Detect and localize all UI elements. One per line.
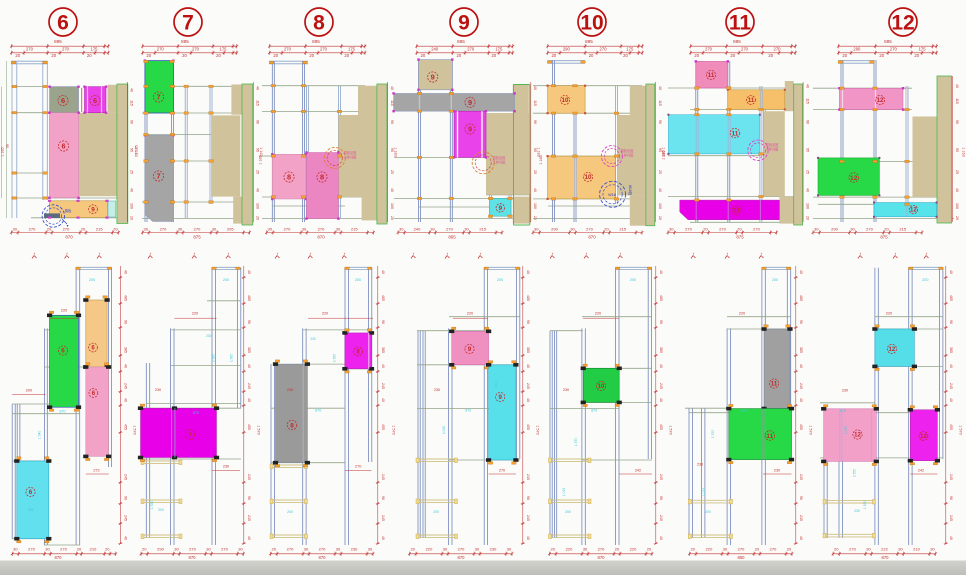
svg-text:220: 220 (595, 312, 601, 316)
svg-text:870: 870 (598, 555, 606, 560)
svg-text:455: 455 (247, 424, 251, 430)
svg-text:20: 20 (730, 53, 735, 58)
svg-text:7: 7 (156, 172, 160, 181)
svg-text:11: 11 (729, 11, 752, 34)
svg-text:90: 90 (381, 496, 385, 500)
svg-text:8: 8 (287, 173, 291, 182)
svg-text:20: 20 (914, 53, 919, 58)
svg-text:40: 40 (659, 398, 663, 402)
svg-text:270: 270 (774, 47, 782, 52)
svg-text:30: 30 (570, 227, 575, 232)
svg-text:245: 245 (659, 515, 663, 521)
svg-text:270: 270 (284, 227, 291, 232)
svg-text:40: 40 (949, 536, 953, 540)
svg-text:115: 115 (533, 100, 537, 106)
svg-text:455: 455 (381, 424, 385, 430)
svg-text:40: 40 (256, 188, 260, 192)
svg-text:1 183: 1 183 (394, 147, 398, 157)
svg-text:9: 9 (468, 346, 472, 353)
svg-text:40: 40 (949, 270, 953, 274)
svg-text:90: 90 (390, 120, 394, 124)
svg-text:1 565: 1 565 (333, 354, 337, 362)
svg-text:485: 485 (526, 295, 530, 301)
svg-text:∨: ∨ (66, 252, 68, 256)
svg-text:270: 270 (849, 546, 856, 551)
svg-text:95: 95 (390, 148, 394, 152)
svg-text:∨: ∨ (309, 252, 311, 256)
svg-text:175: 175 (91, 47, 99, 52)
svg-text:485: 485 (799, 295, 803, 301)
svg-text:242: 242 (635, 469, 641, 473)
svg-text:6: 6 (29, 489, 33, 496)
svg-text:1 040: 1 040 (442, 426, 446, 434)
svg-text:230: 230 (563, 388, 569, 392)
svg-text:1 570: 1 570 (809, 425, 813, 435)
svg-text:90: 90 (124, 320, 128, 324)
svg-text:30: 30 (507, 546, 512, 551)
svg-text:870: 870 (840, 409, 846, 413)
svg-text:1 570: 1 570 (392, 425, 396, 435)
svg-text:20: 20 (216, 53, 221, 58)
svg-text:90: 90 (526, 320, 530, 324)
svg-text:30: 30 (206, 546, 211, 551)
svg-text:290: 290 (563, 47, 571, 52)
svg-text:12: 12 (891, 11, 914, 34)
svg-text:90: 90 (955, 120, 959, 124)
svg-text:30: 30 (399, 227, 404, 232)
svg-text:220: 220 (322, 312, 328, 316)
svg-text:220: 220 (566, 546, 573, 551)
svg-text:30: 30 (304, 546, 309, 551)
svg-text:870: 870 (591, 409, 597, 413)
svg-text:40: 40 (247, 270, 251, 274)
svg-text:40: 40 (659, 270, 663, 274)
svg-text:245: 245 (949, 515, 953, 521)
svg-text:8: 8 (290, 422, 294, 429)
svg-text:870: 870 (193, 411, 199, 415)
svg-text:230: 230 (842, 389, 848, 393)
svg-text:大样详图: 大样详图 (493, 160, 506, 165)
svg-text:870: 870 (317, 234, 325, 239)
svg-text:11: 11 (766, 433, 773, 440)
svg-text:885: 885 (312, 39, 320, 44)
svg-text:865: 865 (448, 234, 456, 239)
svg-text:230: 230 (697, 463, 703, 467)
svg-text:245: 245 (124, 474, 128, 480)
svg-text:270: 270 (192, 47, 200, 52)
svg-text:6: 6 (61, 96, 65, 105)
svg-text:30: 30 (174, 546, 179, 551)
svg-text:870: 870 (189, 555, 197, 560)
svg-text:40: 40 (799, 398, 803, 402)
svg-text:245: 245 (247, 474, 251, 480)
svg-text:1 530: 1 530 (863, 501, 867, 510)
svg-text:270: 270 (29, 227, 36, 232)
svg-text:40: 40 (526, 398, 530, 402)
svg-text:245: 245 (526, 383, 530, 389)
svg-text:215: 215 (96, 227, 103, 232)
svg-text:20: 20 (146, 53, 151, 58)
svg-text:20: 20 (113, 227, 118, 232)
svg-text:40: 40 (247, 536, 251, 540)
svg-text:30: 30 (45, 546, 50, 551)
svg-text:∨: ∨ (33, 252, 35, 256)
svg-text:20: 20 (130, 216, 134, 220)
svg-text:大样详图: 大样详图 (766, 147, 779, 152)
svg-text:30: 30 (238, 546, 243, 551)
svg-text:200: 200 (26, 389, 32, 393)
svg-text:30: 30 (430, 227, 435, 232)
svg-text:90: 90 (799, 320, 803, 324)
svg-text:245: 245 (124, 515, 128, 521)
svg-text:20: 20 (691, 546, 696, 551)
svg-text:40: 40 (390, 188, 394, 192)
svg-text:20: 20 (787, 546, 792, 551)
svg-text:∨: ∨ (343, 252, 345, 256)
svg-text:30: 30 (723, 546, 728, 551)
svg-text:20: 20 (623, 53, 628, 58)
svg-text:30: 30 (336, 546, 341, 551)
svg-text:30: 30 (212, 227, 217, 232)
svg-text:270: 270 (770, 546, 777, 551)
svg-text:270: 270 (318, 227, 325, 232)
svg-text:200: 200 (89, 278, 95, 282)
svg-text:40: 40 (659, 364, 663, 368)
svg-text:11: 11 (748, 98, 755, 104)
svg-text:200: 200 (433, 510, 439, 514)
svg-text:270: 270 (705, 47, 713, 52)
svg-text:40: 40 (533, 188, 537, 192)
svg-text:200: 200 (772, 278, 778, 282)
svg-text:242: 242 (918, 469, 924, 473)
svg-text:90: 90 (526, 496, 530, 500)
svg-text:20: 20 (273, 53, 278, 58)
svg-text:270: 270 (753, 227, 760, 232)
svg-text:1 540: 1 540 (38, 431, 42, 440)
svg-text:270: 270 (320, 47, 328, 52)
svg-text:200: 200 (705, 510, 711, 514)
svg-text:20: 20 (15, 53, 20, 58)
svg-text:10: 10 (580, 11, 603, 34)
svg-text:220: 220 (739, 312, 745, 316)
svg-text:∨: ∨ (692, 252, 694, 256)
svg-text:270: 270 (157, 47, 165, 52)
svg-text:20: 20 (492, 53, 497, 58)
svg-text:∨: ∨ (925, 252, 927, 256)
svg-text:30: 30 (12, 227, 17, 232)
svg-text:270: 270 (26, 47, 34, 52)
svg-text:100: 100 (955, 203, 959, 209)
svg-text:20: 20 (703, 227, 708, 232)
svg-text:25: 25 (130, 170, 134, 174)
svg-text:870: 870 (458, 555, 466, 560)
svg-text:30: 30 (336, 227, 341, 232)
svg-text:12: 12 (889, 347, 896, 353)
svg-text:模板加固: 模板加固 (621, 148, 634, 153)
svg-text:40: 40 (130, 188, 134, 192)
svg-text:20: 20 (589, 53, 594, 58)
svg-text:220: 220 (192, 312, 198, 316)
svg-text:1 570: 1 570 (574, 438, 578, 447)
svg-text:215: 215 (479, 227, 486, 232)
svg-text:895: 895 (54, 39, 62, 44)
svg-text:90: 90 (381, 320, 385, 324)
svg-text:40: 40 (124, 398, 128, 402)
svg-text:115: 115 (658, 100, 662, 106)
svg-text:270: 270 (890, 47, 898, 52)
svg-text:455: 455 (124, 424, 128, 430)
svg-text:20: 20 (51, 53, 56, 58)
svg-text:40: 40 (526, 270, 530, 274)
svg-text:90: 90 (658, 120, 662, 124)
svg-text:95: 95 (130, 148, 134, 152)
svg-text:30: 30 (368, 546, 373, 551)
svg-text:6: 6 (61, 348, 65, 355)
svg-text:90: 90 (130, 120, 134, 124)
svg-text:40: 40 (381, 364, 385, 368)
svg-text:875: 875 (880, 234, 888, 239)
svg-text:1 570: 1 570 (711, 430, 715, 439)
svg-text:455: 455 (949, 424, 953, 430)
svg-text:∨: ∨ (276, 252, 278, 256)
svg-text:870: 870 (741, 409, 747, 413)
svg-text:20: 20 (81, 227, 86, 232)
svg-text:230: 230 (206, 334, 212, 338)
svg-text:245: 245 (247, 515, 251, 521)
svg-text:1 565: 1 565 (212, 354, 216, 362)
svg-text:245: 245 (799, 474, 803, 480)
svg-text:40: 40 (247, 364, 251, 368)
svg-text:385: 385 (381, 347, 385, 353)
svg-text:100: 100 (130, 203, 134, 209)
svg-text:30: 30 (268, 227, 273, 232)
svg-text:175: 175 (220, 47, 228, 52)
svg-text:270: 270 (60, 546, 67, 551)
svg-text:90: 90 (949, 320, 953, 324)
svg-text:200: 200 (287, 510, 293, 514)
svg-text:30: 30 (178, 227, 183, 232)
svg-text:870: 870 (55, 555, 63, 560)
svg-text:40: 40 (130, 88, 134, 92)
svg-text:9: 9 (499, 205, 503, 212)
svg-text:30: 30 (930, 546, 935, 551)
svg-text:40: 40 (247, 398, 251, 402)
svg-text:245: 245 (124, 383, 128, 389)
svg-text:20: 20 (551, 546, 556, 551)
svg-text:230: 230 (310, 337, 316, 341)
svg-text:270: 270 (287, 546, 294, 551)
svg-text:233: 233 (28, 508, 34, 512)
svg-text:∨: ∨ (98, 252, 100, 256)
svg-text:11: 11 (732, 130, 739, 137)
svg-text:220: 220 (467, 312, 473, 316)
svg-text:40: 40 (381, 398, 385, 402)
svg-text:30: 30 (534, 227, 539, 232)
svg-text:215: 215 (351, 227, 358, 232)
svg-text:1 570: 1 570 (669, 425, 673, 435)
svg-text:1 570: 1 570 (844, 426, 848, 435)
svg-text:20: 20 (142, 546, 147, 551)
svg-text:215: 215 (619, 227, 626, 232)
svg-text:385: 385 (659, 347, 663, 353)
svg-text:220: 220 (706, 546, 713, 551)
svg-text:30: 30 (583, 546, 588, 551)
svg-text:40: 40 (658, 188, 662, 192)
svg-text:455: 455 (526, 424, 530, 430)
svg-text:115: 115 (256, 100, 260, 106)
svg-text:270: 270 (467, 47, 475, 52)
svg-text:20: 20 (834, 546, 839, 551)
svg-text:200: 200 (223, 278, 229, 282)
svg-text:385: 385 (949, 347, 953, 353)
svg-text:870: 870 (882, 555, 890, 560)
svg-text:20: 20 (272, 546, 277, 551)
svg-text:270: 270 (866, 227, 873, 232)
svg-text:9: 9 (431, 73, 435, 82)
svg-text:455: 455 (799, 424, 803, 430)
svg-text:870: 870 (319, 555, 327, 560)
svg-text:885: 885 (181, 39, 189, 44)
svg-text:270: 270 (284, 47, 292, 52)
svg-text:230: 230 (854, 509, 860, 513)
svg-text:40: 40 (256, 86, 260, 90)
svg-text:220: 220 (886, 312, 892, 316)
svg-text:115: 115 (806, 98, 810, 104)
svg-text:270: 270 (63, 227, 70, 232)
svg-text:模板加固: 模板加固 (493, 155, 506, 160)
svg-text:9: 9 (468, 125, 472, 134)
svg-text:1 570: 1 570 (257, 425, 261, 435)
svg-text:885: 885 (585, 39, 593, 44)
svg-text:∨: ∨ (412, 252, 414, 256)
svg-text:7: 7 (156, 93, 160, 102)
svg-text:270: 270 (598, 546, 605, 551)
svg-text:20: 20 (256, 216, 260, 220)
svg-text:870: 870 (465, 409, 471, 413)
svg-text:20: 20 (551, 53, 556, 58)
svg-text:100: 100 (256, 203, 260, 209)
svg-text:9: 9 (498, 394, 502, 401)
svg-text:245: 245 (526, 515, 530, 521)
svg-text:245: 245 (659, 474, 663, 480)
svg-text:11: 11 (708, 72, 715, 79)
svg-text:90: 90 (659, 496, 663, 500)
svg-text:90: 90 (949, 496, 953, 500)
svg-text:485: 485 (659, 295, 663, 301)
svg-text:20: 20 (344, 53, 349, 58)
svg-text:90: 90 (659, 320, 663, 324)
svg-text:20: 20 (755, 546, 760, 551)
svg-text:20: 20 (87, 53, 92, 58)
svg-text:245: 245 (949, 474, 953, 480)
svg-text:90: 90 (247, 320, 251, 324)
svg-text:40: 40 (659, 536, 663, 540)
svg-text:95: 95 (955, 148, 959, 152)
svg-text:∨: ∨ (227, 252, 229, 256)
svg-text:20: 20 (604, 227, 609, 232)
svg-text:1 565: 1 565 (229, 354, 233, 362)
svg-text:25: 25 (658, 170, 662, 174)
svg-text:200: 200 (355, 278, 361, 282)
svg-text:30: 30 (144, 227, 149, 232)
svg-text:245: 245 (526, 474, 530, 480)
svg-text:183: 183 (494, 382, 498, 387)
svg-text:20: 20 (457, 53, 462, 58)
svg-text:385: 385 (526, 347, 530, 353)
svg-text:20: 20 (182, 53, 187, 58)
svg-text:200: 200 (922, 278, 928, 282)
svg-text:20: 20 (884, 227, 889, 232)
svg-text:∨: ∨ (619, 252, 621, 256)
svg-text:200: 200 (565, 510, 571, 514)
svg-text:模板: 模板 (65, 208, 72, 213)
svg-text:大样详图: 大样详图 (621, 153, 634, 158)
svg-text:40: 40 (381, 536, 385, 540)
svg-text:245: 245 (381, 383, 385, 389)
svg-text:1 570: 1 570 (959, 425, 963, 435)
svg-text:95: 95 (806, 148, 810, 152)
svg-text:215: 215 (899, 227, 906, 232)
svg-text:875: 875 (193, 234, 201, 239)
svg-text:7: 7 (188, 432, 192, 439)
svg-text:90: 90 (256, 120, 260, 124)
svg-text:W16挡: W16挡 (628, 185, 633, 196)
svg-text:10: 10 (598, 384, 605, 390)
svg-text:270: 270 (600, 47, 608, 52)
svg-text:40: 40 (124, 270, 128, 274)
svg-text:245: 245 (381, 474, 385, 480)
svg-text:210: 210 (90, 546, 97, 551)
svg-text:90: 90 (247, 496, 251, 500)
svg-text:272: 272 (93, 469, 99, 473)
svg-text:230: 230 (351, 546, 358, 551)
svg-text:95: 95 (5, 144, 9, 148)
svg-text:40: 40 (799, 536, 803, 540)
svg-text:1 015: 1 015 (562, 488, 566, 497)
svg-text:200: 200 (630, 278, 636, 282)
svg-text:40: 40 (124, 536, 128, 540)
svg-text:220: 220 (61, 309, 67, 313)
svg-text:290: 290 (831, 227, 838, 232)
svg-text:∨: ∨ (479, 252, 481, 256)
svg-text:870: 870 (315, 409, 321, 413)
svg-text:870: 870 (65, 234, 73, 239)
svg-text:20: 20 (105, 546, 110, 551)
svg-text:455: 455 (659, 424, 663, 430)
svg-text:230: 230 (223, 465, 229, 469)
svg-text:270: 270 (194, 227, 201, 232)
svg-text:1 185: 1 185 (539, 155, 543, 165)
svg-text:485: 485 (949, 295, 953, 301)
svg-text:270: 270 (458, 546, 465, 551)
svg-text:20: 20 (806, 216, 810, 220)
svg-text:90: 90 (124, 496, 128, 500)
svg-text:885: 885 (457, 39, 465, 44)
svg-text:210: 210 (913, 546, 920, 551)
svg-text:40: 40 (799, 364, 803, 368)
svg-text:385: 385 (799, 347, 803, 353)
svg-text:245: 245 (381, 515, 385, 521)
svg-text:25: 25 (256, 170, 260, 174)
svg-text:8: 8 (320, 173, 324, 182)
svg-text:385: 385 (247, 347, 251, 353)
svg-text:270: 270 (499, 469, 505, 473)
svg-text:∨: ∨ (551, 252, 553, 256)
svg-text:40: 40 (124, 364, 128, 368)
svg-text:40: 40 (799, 270, 803, 274)
svg-text:40: 40 (533, 86, 537, 90)
svg-text:20: 20 (77, 546, 82, 551)
